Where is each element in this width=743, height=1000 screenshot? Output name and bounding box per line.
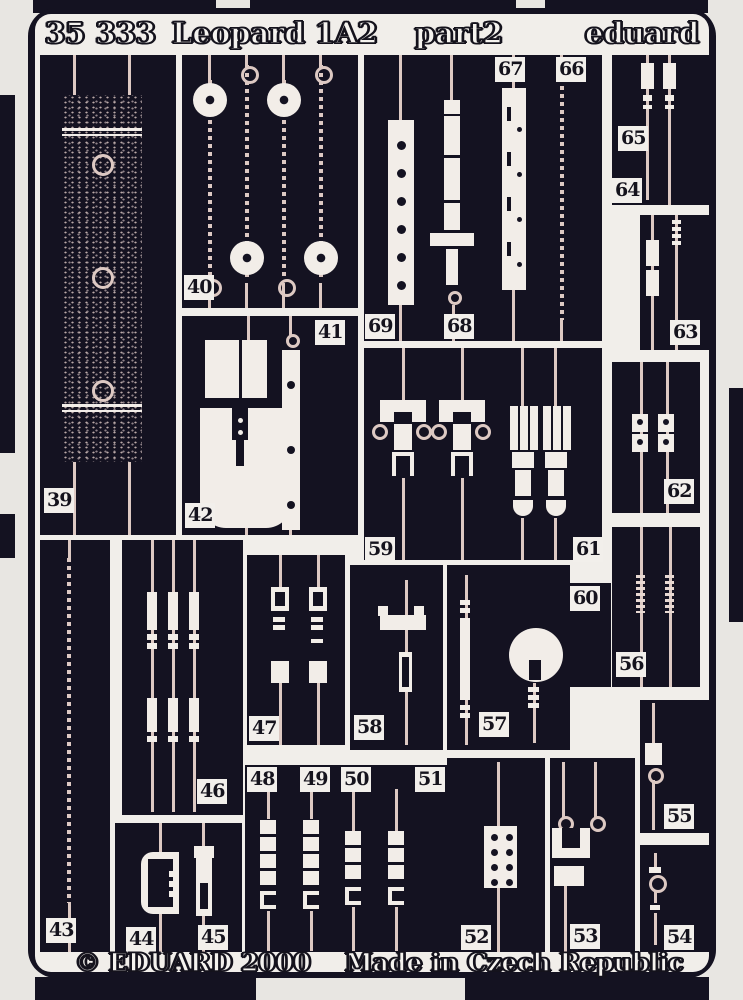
- sleeve-part: [147, 592, 157, 630]
- rod: [317, 683, 320, 745]
- fitting-mark: [672, 234, 681, 238]
- strip-slot: [507, 197, 511, 211]
- rod: [202, 823, 205, 846]
- rod: [533, 683, 536, 743]
- chain-end-ring: [286, 334, 300, 348]
- chain-end-ring: [448, 291, 462, 305]
- rod: [564, 886, 567, 952]
- fitting-part: [649, 867, 661, 873]
- fitting-part: [663, 63, 676, 89]
- strip-hole: [397, 253, 406, 262]
- rod: [159, 914, 162, 952]
- cover-part: [242, 340, 267, 398]
- rod: [652, 703, 655, 743]
- panel-44-45: 44 45: [115, 823, 242, 952]
- etched-texture: [665, 575, 674, 613]
- rod-tip: [444, 100, 460, 114]
- strip-hole: [287, 381, 295, 389]
- fitting-part: [646, 240, 659, 266]
- washer-part: [230, 241, 264, 275]
- shackle-slot: [313, 592, 323, 606]
- chain-end-ring: [590, 816, 606, 832]
- chain-end-ring: [648, 768, 664, 784]
- segment: [260, 854, 276, 868]
- rod: [172, 540, 175, 812]
- segment: [388, 848, 404, 862]
- rod: [399, 55, 402, 120]
- origin-text: Made in Czech Republic: [345, 948, 683, 977]
- clamp-eye: [475, 424, 491, 440]
- chain-end-ring: [241, 66, 259, 84]
- fitting-mark: [147, 634, 157, 640]
- strip-hole: [287, 446, 295, 454]
- plate-ring: [92, 154, 114, 176]
- rivet-dot: [238, 418, 243, 423]
- part-number-tag: 46: [197, 779, 227, 804]
- fitting-part: [646, 270, 659, 296]
- hook-slot: [349, 891, 361, 901]
- part-number-tag: 67: [495, 57, 525, 82]
- rod: [654, 853, 657, 867]
- washer-part: [304, 241, 338, 275]
- rod: [654, 913, 657, 945]
- key-ring: [649, 875, 667, 893]
- sleeve-part: [548, 470, 564, 496]
- strip-hole: [287, 501, 295, 509]
- rod: [128, 462, 131, 535]
- rod: [279, 555, 282, 587]
- fitting-mark: [528, 703, 539, 708]
- part-number-tag: 49: [300, 767, 330, 792]
- fitting-hole: [663, 419, 669, 425]
- rod: [399, 305, 402, 341]
- strip-hole: [517, 262, 522, 267]
- segment: [260, 837, 276, 851]
- hook-slot: [264, 895, 276, 905]
- plate-hole: [506, 879, 513, 886]
- washer-part: [193, 83, 227, 117]
- clamp-tooth: [169, 871, 177, 877]
- fitting-mark: [665, 95, 674, 101]
- kit-name: Leopard 1A2: [172, 16, 378, 50]
- fitting-mark: [273, 617, 285, 622]
- segment: [303, 854, 319, 868]
- sleeve-bar: [563, 406, 571, 450]
- panel-57: 57: [447, 565, 570, 750]
- rod: [512, 290, 515, 341]
- rod: [267, 911, 270, 951]
- part-number-tag: 58: [354, 715, 384, 740]
- plate-hole: [491, 834, 498, 841]
- plate-line: [62, 128, 142, 131]
- fitting-mark: [643, 95, 652, 101]
- clamp-eye: [416, 424, 432, 440]
- fitting-mark: [189, 643, 199, 649]
- fitting-mark: [460, 600, 470, 605]
- fitting-mark: [189, 634, 199, 640]
- sprue-tab: [0, 95, 15, 453]
- fitting-mark: [311, 639, 323, 643]
- rod: [245, 528, 248, 535]
- sprue-tab: [729, 388, 743, 622]
- fitting-mark: [650, 905, 660, 910]
- bell-part: [513, 500, 533, 516]
- plate-hole: [491, 864, 498, 871]
- fitting-mark: [643, 105, 652, 109]
- hook-slot: [307, 895, 319, 905]
- pin-block: [271, 661, 289, 683]
- plate-hole: [506, 864, 513, 871]
- rod: [461, 348, 464, 400]
- chain-end-ring: [278, 279, 296, 297]
- sleeve-bar: [543, 406, 551, 450]
- plate-ring: [92, 380, 114, 402]
- part-number-tag: 45: [198, 925, 228, 950]
- strip-cap: [194, 846, 214, 858]
- clamp-jaw-slot: [455, 456, 469, 476]
- fitting-mark: [189, 736, 199, 742]
- strip-hole: [517, 217, 522, 222]
- rod: [267, 789, 270, 819]
- rod: [405, 580, 408, 615]
- fitting-mark: [168, 643, 178, 649]
- cover-part: [205, 340, 239, 398]
- fitting-hole: [637, 439, 643, 445]
- panel-66-69: 67 66 69 68: [364, 55, 602, 341]
- part-number-tag: 55: [664, 804, 694, 829]
- segment: [260, 871, 276, 885]
- plate-line: [62, 404, 142, 407]
- panel-41-42: 41 42: [182, 316, 358, 535]
- rod-segment: [446, 249, 458, 285]
- rod: [159, 823, 162, 852]
- sleeve-part: [189, 698, 199, 732]
- clamp-stem: [394, 424, 412, 450]
- panel-63-64: 63: [640, 215, 709, 350]
- fitting-mark: [460, 608, 470, 613]
- fitting-mark: [147, 643, 157, 649]
- part-number-tag: 43: [46, 918, 76, 943]
- photoetch-fret-scan: 35 333 Leopard 1A2 part2 eduard 39: [0, 0, 743, 1000]
- clamp-jaw-slot: [396, 456, 410, 476]
- fitting-mark: [528, 695, 539, 700]
- fitting-mark: [672, 227, 681, 231]
- rod: [521, 518, 524, 560]
- strip-slot: [507, 107, 511, 121]
- rod: [282, 55, 285, 83]
- clamp-stem: [453, 424, 471, 450]
- t-bar-part: [380, 615, 426, 630]
- sleeve-bar: [510, 406, 518, 450]
- plate-ring: [92, 267, 114, 289]
- slotted-strip-part: [502, 88, 526, 290]
- rod: [352, 789, 355, 831]
- rod: [560, 320, 563, 341]
- clamp-notch: [394, 412, 412, 422]
- rod: [208, 55, 211, 83]
- plate-hole: [491, 849, 498, 856]
- rod: [352, 907, 355, 951]
- sleeve-part: [168, 592, 178, 630]
- strip-hole: [517, 127, 522, 132]
- rod: [282, 283, 285, 308]
- rod: [521, 348, 524, 406]
- plate-line: [62, 410, 142, 412]
- part-number-tag: 54: [664, 925, 694, 950]
- rivet-dot: [238, 430, 243, 435]
- fitting-mark: [311, 617, 323, 622]
- fitting-mark: [168, 736, 178, 742]
- panel-47: 47: [247, 555, 345, 745]
- rod: [461, 478, 464, 560]
- fitting-mark: [528, 687, 539, 692]
- cover-notch: [236, 440, 244, 466]
- rod: [310, 911, 313, 951]
- rod: [68, 540, 71, 558]
- fitting-mark: [460, 705, 470, 710]
- fitting-mark: [665, 105, 674, 109]
- panel-54: 54: [640, 845, 709, 952]
- catalog-number: 35 333: [45, 16, 156, 50]
- part-label: part2: [415, 16, 503, 50]
- part-number-tag: 41: [315, 320, 345, 345]
- fitting-mark: [311, 625, 323, 630]
- bar-part: [460, 618, 470, 700]
- segment: [303, 871, 319, 885]
- strip-hole: [397, 281, 406, 290]
- clamp-tooth: [169, 881, 177, 887]
- sleeve-bar: [520, 406, 528, 450]
- strip-hole: [397, 197, 406, 206]
- sprue-tab: [465, 977, 709, 1000]
- rod: [151, 540, 154, 812]
- segment: [388, 865, 404, 879]
- rod: [652, 780, 655, 830]
- rod: [554, 348, 557, 406]
- sleeve-bar: [553, 406, 561, 450]
- rod: [289, 316, 292, 336]
- rod: [245, 283, 248, 308]
- sleeve-part: [189, 592, 199, 630]
- rod: [497, 888, 500, 952]
- fitting-part: [645, 743, 662, 765]
- sleeve-part: [147, 698, 157, 732]
- strip-hole: [397, 225, 406, 234]
- shackle-slot: [275, 592, 285, 606]
- fitting-part: [641, 63, 654, 89]
- part-number-tag: 68: [444, 314, 474, 339]
- panel-40: 40: [182, 55, 358, 308]
- segment: [345, 831, 361, 845]
- fitting-mark: [672, 220, 681, 224]
- panel-56: 56: [612, 527, 700, 687]
- chain-end-ring: [315, 66, 333, 84]
- part-number-tag: 63: [670, 320, 700, 345]
- piece-slot: [402, 657, 409, 687]
- segment: [303, 837, 319, 851]
- rod: [654, 891, 657, 903]
- part-number-tag: 60: [570, 586, 600, 611]
- panel-52: 52: [447, 758, 545, 952]
- band-mark: [444, 200, 460, 203]
- bracket-base: [554, 866, 584, 886]
- rod: [402, 348, 405, 400]
- rod: [310, 789, 313, 819]
- part-number-tag: 65: [618, 126, 648, 151]
- bell-part: [546, 500, 566, 516]
- rod: [402, 478, 405, 560]
- rod: [395, 907, 398, 951]
- fitting-mark: [147, 736, 157, 742]
- panel-46: 46: [122, 540, 243, 815]
- segment: [303, 820, 319, 834]
- sleeve-part: [515, 470, 531, 496]
- strip-hole: [397, 169, 406, 178]
- fitting-hole: [663, 439, 669, 445]
- rod: [554, 518, 557, 560]
- cleaning-rod-part: [444, 116, 460, 230]
- plate-hole: [506, 849, 513, 856]
- copyright-text: © EDUARD 2000: [75, 948, 311, 977]
- panel-59-61: 59 61: [364, 348, 602, 560]
- washer-part: [267, 83, 301, 117]
- part-number-tag: 66: [556, 57, 586, 82]
- segment: [260, 820, 276, 834]
- crossguard: [430, 233, 474, 246]
- band-mark: [444, 155, 460, 158]
- part-number-tag: 50: [341, 767, 371, 792]
- plate-line: [62, 134, 142, 136]
- panel-53: 53: [550, 758, 635, 952]
- rod: [289, 530, 292, 535]
- strip-hole: [517, 172, 522, 177]
- part-number-tag: 47: [249, 716, 279, 741]
- clamp-eye: [431, 424, 447, 440]
- plate-hole: [491, 879, 498, 886]
- part-number-tag: 57: [479, 712, 509, 737]
- part-number-tag: 51: [415, 767, 445, 792]
- rod: [319, 283, 322, 308]
- part-number-tag: 39: [44, 488, 74, 513]
- fitting-mark: [168, 634, 178, 640]
- panel-55: 55: [640, 700, 709, 833]
- rod: [247, 316, 250, 340]
- sprue-tab: [0, 514, 15, 558]
- sleeve-block: [512, 452, 534, 468]
- rod: [594, 762, 597, 818]
- part-number-tag: 64: [612, 178, 642, 203]
- chain-part: [67, 558, 71, 903]
- part-number-tag: 52: [461, 925, 491, 950]
- part-number-tag: 42: [185, 503, 215, 528]
- pin-block: [309, 661, 327, 683]
- rod: [450, 55, 453, 100]
- sleeve-part: [168, 698, 178, 732]
- panel-43: 43: [40, 540, 110, 952]
- panel-58: 58: [350, 565, 443, 750]
- segment: [388, 831, 404, 845]
- rod: [395, 789, 398, 831]
- etched-texture: [636, 575, 645, 613]
- part-number-tag: 61: [573, 537, 603, 562]
- part-number-tag: 69: [365, 314, 395, 339]
- fitting-mark: [273, 625, 285, 630]
- part-number-tag: 53: [570, 924, 600, 949]
- part-number-tag: 62: [664, 479, 694, 504]
- rod: [193, 540, 196, 812]
- rod: [317, 555, 320, 587]
- clamp-eye: [372, 424, 388, 440]
- strip-slot: [200, 883, 208, 909]
- brand-logo: eduard: [585, 16, 699, 50]
- sleeve-bar: [530, 406, 538, 450]
- strip-slot: [507, 152, 511, 166]
- disc-notch: [529, 660, 541, 680]
- part-number-tag: 56: [616, 652, 646, 677]
- cover-notch: [232, 408, 248, 440]
- strip-hole: [397, 141, 406, 150]
- rod: [562, 762, 565, 818]
- part-number-tag: 59: [365, 537, 395, 562]
- segment: [345, 865, 361, 879]
- rod: [128, 55, 131, 95]
- clamp-tooth: [169, 891, 177, 897]
- part-number-tag: 40: [184, 275, 214, 300]
- panel-62: 62: [612, 362, 700, 513]
- sprue-tab: [35, 977, 256, 1000]
- bracket-notch: [562, 828, 580, 848]
- part-number-tag: 48: [247, 767, 277, 792]
- hook-slot: [392, 891, 404, 901]
- sleeve-block: [545, 452, 567, 468]
- fitting-mark: [460, 713, 470, 718]
- fitting-mark: [672, 241, 681, 245]
- strip-slot: [507, 242, 511, 256]
- clamp-notch: [453, 412, 471, 422]
- chain-part: [560, 70, 564, 320]
- plate-hole: [506, 834, 513, 841]
- segment: [345, 848, 361, 862]
- rod: [497, 762, 500, 826]
- panel-39: 39: [40, 55, 176, 535]
- fitting-hole: [637, 419, 643, 425]
- panel-48-51: 48 49 50 51: [245, 765, 458, 952]
